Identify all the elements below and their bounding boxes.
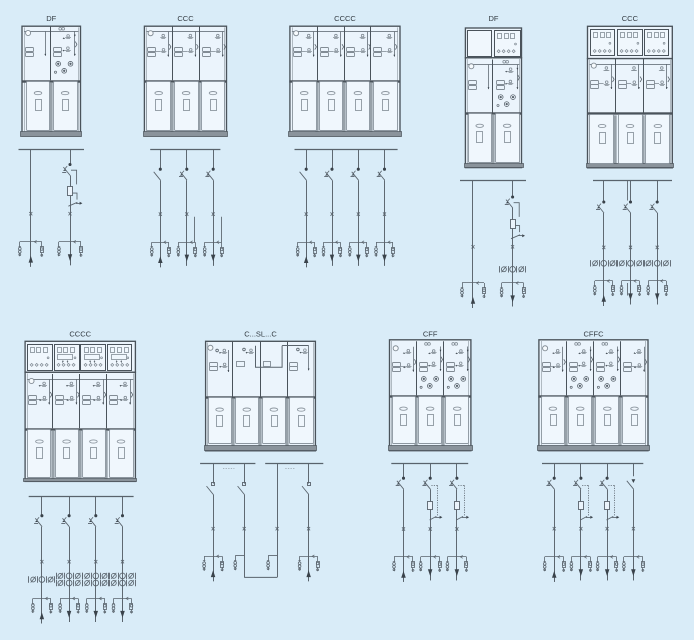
svg-text:DF: DF bbox=[46, 14, 56, 23]
svg-text:CCC: CCC bbox=[622, 14, 639, 23]
svg-text:CFFC: CFFC bbox=[584, 330, 605, 339]
svg-text:CCCC: CCCC bbox=[69, 330, 91, 339]
svg-text:DF: DF bbox=[489, 14, 499, 23]
svg-text:CCCC: CCCC bbox=[334, 14, 356, 23]
svg-text:CFF: CFF bbox=[423, 330, 438, 339]
svg-text:C...SL...C: C...SL...C bbox=[244, 330, 277, 339]
svg-text:CCC: CCC bbox=[177, 14, 194, 23]
